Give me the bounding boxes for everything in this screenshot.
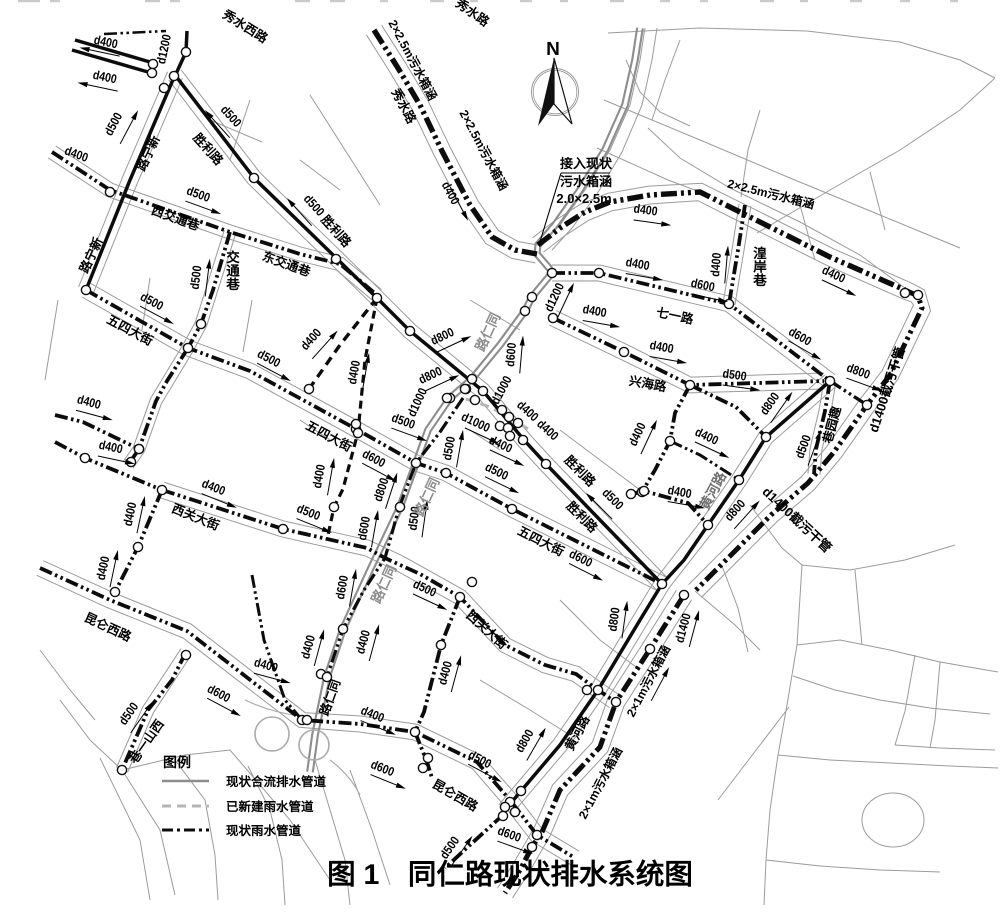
svg-text:图例: 图例 [163, 754, 191, 770]
svg-text:湟岸巷: 湟岸巷 [752, 246, 767, 288]
svg-text:图 1 同仁路现状排水系统图: 图 1 同仁路现状排水系统图 [327, 859, 693, 891]
svg-text:d400: d400 [708, 252, 724, 277]
svg-text:现状雨水管道: 现状雨水管道 [226, 824, 302, 838]
svg-text:污水箱涵: 污水箱涵 [560, 174, 612, 189]
svg-text:d600: d600 [503, 342, 519, 367]
svg-text:2.0×2.5m: 2.0×2.5m [556, 191, 611, 206]
svg-text:已新建雨水管道: 已新建雨水管道 [226, 800, 314, 814]
svg-text:d500: d500 [188, 265, 205, 291]
svg-text:接入现状: 接入现状 [560, 156, 613, 171]
svg-text:N: N [546, 39, 560, 60]
svg-text:现状合流排水管道: 现状合流排水管道 [226, 775, 327, 789]
svg-text:交通巷: 交通巷 [225, 250, 240, 292]
